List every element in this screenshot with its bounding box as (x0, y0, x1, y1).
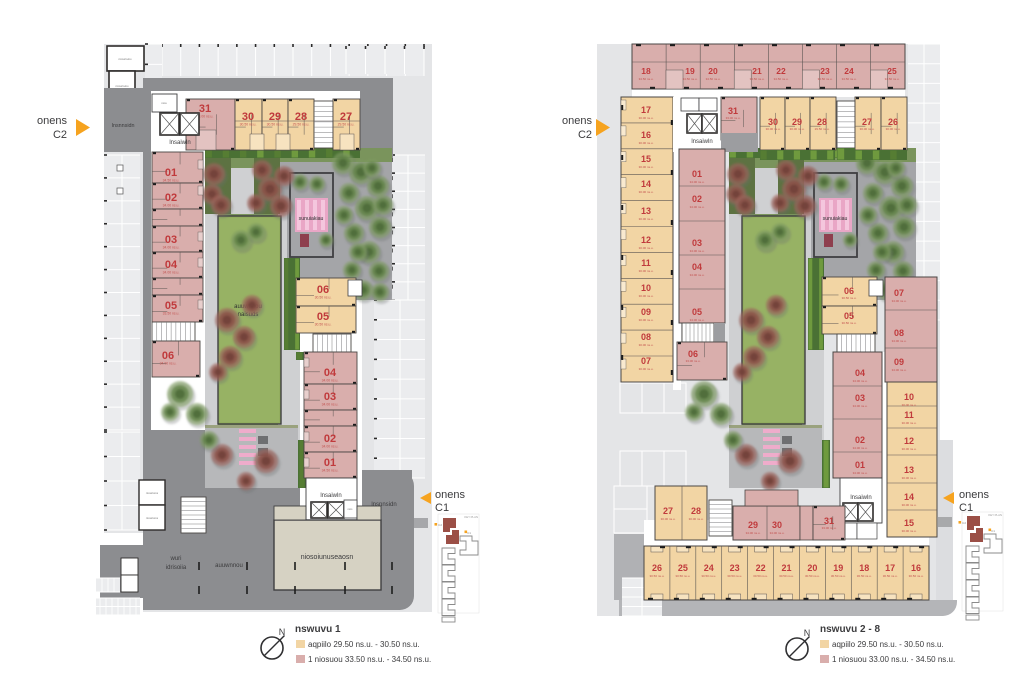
svg-text:30: 30 (768, 117, 778, 127)
svg-text:01: 01 (855, 460, 865, 470)
svg-text:20: 20 (807, 563, 817, 573)
svg-text:30.50 ns.u.: 30.50 ns.u. (727, 574, 742, 578)
svg-text:30.00 ns.u.: 30.00 ns.u. (689, 517, 704, 521)
svg-text:34.00 ns.u.: 34.00 ns.u. (690, 318, 705, 322)
svg-text:03: 03 (324, 391, 336, 403)
svg-text:27: 27 (862, 117, 872, 127)
svg-text:29: 29 (792, 117, 802, 127)
svg-text:04: 04 (165, 259, 178, 271)
svg-text:27: 27 (663, 506, 673, 516)
svg-text:niosinsios: niosinsios (146, 516, 159, 520)
svg-text:1 niosuou 33.00 ns.u. - 34.50: 1 niosuou 33.00 ns.u. - 34.50 ns.u. (832, 655, 955, 664)
svg-text:sunuiakiau: sunuiakiau (299, 216, 324, 222)
svg-text:31: 31 (199, 103, 211, 115)
svg-text:23: 23 (730, 563, 740, 573)
svg-text:08: 08 (641, 332, 651, 342)
svg-text:34.00 ns.u.: 34.00 ns.u. (853, 446, 868, 450)
svg-text:30.00 ns.u.: 30.00 ns.u. (639, 141, 654, 145)
svg-text:34.50 ns.u.: 34.50 ns.u. (885, 77, 900, 81)
svg-text:14: 14 (641, 179, 651, 189)
svg-text:30.50 ns.u.: 30.50 ns.u. (883, 574, 898, 578)
svg-text:29.50 ns.u.: 29.50 ns.u. (338, 123, 355, 127)
svg-text:30.50 ns.u.: 30.50 ns.u. (315, 296, 332, 300)
svg-text:C1: C1 (435, 502, 449, 514)
svg-text:17: 17 (885, 563, 895, 573)
svg-text:30.50 ns.u.: 30.50 ns.u. (831, 574, 846, 578)
svg-text:16: 16 (911, 563, 921, 573)
svg-text:KEY PLAN: KEY PLAN (464, 515, 478, 519)
svg-text:30.50 ns.u.: 30.50 ns.u. (240, 123, 257, 127)
svg-text:lnsaiwln: lnsaiwln (320, 493, 341, 499)
svg-text:30.50 ns.u.: 30.50 ns.u. (842, 321, 857, 325)
svg-text:24: 24 (704, 563, 714, 573)
svg-text:04: 04 (324, 367, 337, 379)
svg-text:30.00 ns.u.: 30.00 ns.u. (639, 165, 654, 169)
svg-text:09: 09 (641, 307, 651, 317)
svg-text:29.50 ns.u.: 29.50 ns.u. (815, 127, 830, 131)
svg-text:26: 26 (888, 117, 898, 127)
svg-text:05: 05 (165, 300, 177, 312)
svg-text:17: 17 (641, 105, 651, 115)
svg-text:30.50 ns.u.: 30.50 ns.u. (857, 574, 872, 578)
svg-text:30.00 ns.u.: 30.00 ns.u. (860, 127, 875, 131)
svg-text:33.00 ns.u.: 33.00 ns.u. (726, 116, 741, 120)
svg-text:22: 22 (756, 563, 766, 573)
svg-text:16: 16 (641, 130, 651, 140)
svg-text:30.50 ns.u.: 30.50 ns.u. (267, 123, 284, 127)
svg-text:06: 06 (162, 350, 174, 362)
svg-text:23: 23 (820, 66, 830, 76)
svg-text:28: 28 (817, 117, 827, 127)
svg-text:34.00 ns.u.: 34.00 ns.u. (322, 445, 339, 449)
svg-text:31: 31 (728, 106, 738, 116)
svg-text:10: 10 (641, 283, 651, 293)
svg-text:06: 06 (844, 286, 854, 296)
svg-text:34.50 ns.u.: 34.50 ns.u. (818, 77, 833, 81)
svg-text:wuri: wuri (169, 556, 181, 562)
svg-text:33.50 ns.u.: 33.50 ns.u. (163, 312, 180, 316)
svg-text:34.00 ns.u.: 34.00 ns.u. (690, 249, 705, 253)
svg-text:30.00 ns.u.: 30.00 ns.u. (639, 116, 654, 120)
svg-text:03: 03 (165, 234, 177, 246)
svg-text:22: 22 (776, 66, 786, 76)
svg-text:19: 19 (685, 66, 695, 76)
svg-text:nswuvu 1: nswuvu 1 (295, 624, 341, 635)
svg-text:18: 18 (641, 66, 651, 76)
svg-text:30.00 ns.u.: 30.00 ns.u. (639, 294, 654, 298)
svg-text:13: 13 (641, 206, 651, 216)
svg-text:07: 07 (894, 288, 904, 298)
svg-text:21: 21 (752, 66, 762, 76)
svg-text:09: 09 (894, 357, 904, 367)
svg-text:C2: C2 (578, 129, 592, 141)
svg-text:30.50 ns.u.: 30.50 ns.u. (805, 574, 820, 578)
svg-text:30.00 ns.u.: 30.00 ns.u. (902, 503, 917, 507)
svg-text:30.00 ns.u.: 30.00 ns.u. (790, 127, 805, 131)
svg-text:06: 06 (688, 349, 698, 359)
svg-text:KEY PLAN: KEY PLAN (988, 513, 1002, 517)
svg-text:33.00 ns.u.: 33.00 ns.u. (686, 359, 701, 363)
svg-text:05: 05 (692, 307, 702, 317)
svg-text:29: 29 (748, 520, 758, 530)
svg-text:idrisoiia: idrisoiia (166, 565, 187, 571)
svg-text:34.00 ns.u.: 34.00 ns.u. (746, 531, 761, 535)
svg-text:30.00 ns.u.: 30.00 ns.u. (639, 246, 654, 250)
svg-text:34.00 ns.u.: 34.00 ns.u. (892, 299, 907, 303)
svg-text:01: 01 (692, 169, 702, 179)
svg-text:niosinsios: niosinsios (118, 57, 132, 61)
svg-text:30.00 ns.u.: 30.00 ns.u. (639, 217, 654, 221)
svg-text:auuwnnou: auuwnnou (215, 563, 243, 569)
svg-text:lnsaiwln: lnsaiwln (691, 139, 712, 145)
svg-text:34.00 ns.u.: 34.00 ns.u. (770, 531, 785, 535)
svg-text:30.00 ns.u.: 30.00 ns.u. (639, 269, 654, 273)
svg-text:34.00 ns.u.: 34.00 ns.u. (853, 404, 868, 408)
svg-text:30.50 ns.u.: 30.50 ns.u. (650, 574, 665, 578)
svg-text:30.00 ns.u.: 30.00 ns.u. (902, 403, 917, 407)
svg-text:34.00 ns.u.: 34.00 ns.u. (163, 271, 180, 275)
svg-text:30.50 ns.u.: 30.50 ns.u. (909, 574, 924, 578)
svg-text:30.00 ns.u.: 30.00 ns.u. (902, 421, 917, 425)
svg-text:1 niosuou 33.50 ns.u. - 34.50: 1 niosuou 33.50 ns.u. - 34.50 ns.u. (308, 655, 431, 664)
svg-text:34.50 ns.u.: 34.50 ns.u. (750, 77, 765, 81)
svg-text:30: 30 (772, 520, 782, 530)
svg-text:niosinsios: niosinsios (115, 84, 129, 88)
svg-text:30.00 ns.u.: 30.00 ns.u. (766, 127, 781, 131)
svg-text:01: 01 (165, 167, 177, 179)
svg-text:02: 02 (692, 194, 702, 204)
svg-text:29.50 ns.u.: 29.50 ns.u. (293, 123, 310, 127)
svg-text:N: N (804, 628, 811, 638)
svg-text:30.00 ns.u.: 30.00 ns.u. (902, 529, 917, 533)
svg-text:28: 28 (691, 506, 701, 516)
svg-text:C1: C1 (991, 529, 995, 533)
svg-text:aqpiilo 29.50 ns.u. - 30.50 ns: aqpiilo 29.50 ns.u. - 30.50 ns.u. (308, 640, 420, 649)
svg-text:C1: C1 (467, 531, 471, 535)
svg-text:13: 13 (904, 465, 914, 475)
svg-text:34.50 ns.u.: 34.50 ns.u. (639, 77, 654, 81)
svg-text:30.00 ns.u.: 30.00 ns.u. (639, 367, 654, 371)
svg-text:05: 05 (844, 311, 854, 321)
svg-text:18: 18 (859, 563, 869, 573)
svg-text:34.00 ns.u.: 34.00 ns.u. (853, 379, 868, 383)
svg-text:34.50 ns.u.: 34.50 ns.u. (322, 469, 339, 473)
svg-text:30.50 ns.u.: 30.50 ns.u. (315, 323, 332, 327)
svg-text:25: 25 (678, 563, 688, 573)
svg-text:niosinsios: niosinsios (146, 491, 159, 495)
svg-text:aqpiilo 29.50 ns.u. - 30.50 ns: aqpiilo 29.50 ns.u. - 30.50 ns.u. (832, 640, 944, 649)
svg-text:34.50 ns.u.: 34.50 ns.u. (706, 77, 721, 81)
svg-text:15: 15 (904, 518, 914, 528)
svg-text:31: 31 (824, 516, 834, 526)
svg-text:30.50 ns.u.: 30.50 ns.u. (779, 574, 794, 578)
svg-text:24: 24 (844, 66, 854, 76)
svg-text:C2: C2 (438, 523, 442, 527)
svg-text:20: 20 (708, 66, 718, 76)
svg-text:01: 01 (324, 457, 336, 469)
svg-text:05: 05 (317, 311, 329, 323)
svg-text:11: 11 (904, 410, 914, 420)
svg-text:25: 25 (887, 66, 897, 76)
svg-text:34.00 ns.u.: 34.00 ns.u. (160, 362, 177, 366)
svg-text:30.00 ns.u.: 30.00 ns.u. (661, 517, 676, 521)
svg-text:34.00 ns.u.: 34.00 ns.u. (322, 403, 339, 407)
svg-text:34.50 ns.u.: 34.50 ns.u. (163, 179, 180, 183)
svg-text:12: 12 (641, 235, 651, 245)
svg-text:lnsnnsidn: lnsnnsidn (371, 502, 396, 508)
svg-text:34.00 ns.u.: 34.00 ns.u. (163, 204, 180, 208)
svg-text:30.50 ns.u.: 30.50 ns.u. (701, 574, 716, 578)
svg-text:nios: nios (348, 507, 353, 511)
svg-text:Insnnsidn: Insnnsidn (111, 123, 134, 129)
svg-text:04: 04 (692, 262, 702, 272)
svg-text:C2: C2 (962, 521, 966, 525)
svg-text:34.00 ns.u.: 34.00 ns.u. (690, 273, 705, 277)
svg-text:21: 21 (781, 563, 791, 573)
svg-text:30.00 ns.u.: 30.00 ns.u. (902, 447, 917, 451)
svg-text:30.50 ns.u.: 30.50 ns.u. (675, 574, 690, 578)
svg-text:02: 02 (324, 433, 336, 445)
svg-text:33.00 ns.u.: 33.00 ns.u. (822, 526, 837, 530)
svg-text:34.00 ns.u.: 34.00 ns.u. (163, 246, 180, 250)
svg-text:02: 02 (165, 192, 177, 204)
svg-text:lnsaiwln: lnsaiwln (850, 495, 871, 501)
svg-text:34.50 ns.u.: 34.50 ns.u. (774, 77, 789, 81)
svg-text:30.00 ns.u.: 30.00 ns.u. (639, 343, 654, 347)
svg-text:34.00 ns.u.: 34.00 ns.u. (892, 368, 907, 372)
svg-text:34.50 ns.u.: 34.50 ns.u. (842, 77, 857, 81)
svg-text:03: 03 (855, 393, 865, 403)
svg-text:34.00 ns.u.: 34.00 ns.u. (892, 339, 907, 343)
svg-text:30.00 ns.u.: 30.00 ns.u. (902, 476, 917, 480)
svg-text:06: 06 (317, 284, 329, 296)
svg-text:04: 04 (855, 368, 865, 378)
svg-text:34.00 ns.u.: 34.00 ns.u. (853, 471, 868, 475)
svg-text:sunuiakiau: sunuiakiau (823, 216, 848, 222)
svg-text:onens: onens (959, 489, 989, 501)
svg-text:C2: C2 (53, 129, 67, 141)
svg-text:30.00 ns.u.: 30.00 ns.u. (639, 190, 654, 194)
svg-text:02: 02 (855, 435, 865, 445)
svg-text:30.00 ns.u.: 30.00 ns.u. (639, 318, 654, 322)
svg-text:14: 14 (904, 492, 914, 502)
svg-text:N: N (279, 627, 286, 637)
svg-text:onens: onens (37, 115, 67, 127)
svg-text:nios: nios (161, 101, 167, 105)
svg-text:26: 26 (652, 563, 662, 573)
svg-text:34.00 ns.u.: 34.00 ns.u. (690, 205, 705, 209)
svg-text:08: 08 (894, 328, 904, 338)
svg-text:10: 10 (904, 392, 914, 402)
svg-text:30.50 ns.u.: 30.50 ns.u. (753, 574, 768, 578)
svg-text:30.00 ns.u.: 30.00 ns.u. (886, 127, 901, 131)
svg-text:niosoiunuseaosn: niosoiunuseaosn (301, 554, 354, 561)
svg-text:34.00 ns.u.: 34.00 ns.u. (322, 379, 339, 383)
svg-text:07: 07 (641, 356, 651, 366)
svg-text:lnsaiwln: lnsaiwln (169, 140, 190, 146)
svg-text:30.50 ns.u.: 30.50 ns.u. (842, 296, 857, 300)
svg-text:onens: onens (435, 489, 465, 501)
svg-text:19: 19 (833, 563, 843, 573)
svg-text:12: 12 (904, 436, 914, 446)
svg-text:03: 03 (692, 238, 702, 248)
svg-text:15: 15 (641, 154, 651, 164)
svg-text:onens: onens (562, 115, 592, 127)
svg-text:34.50 ns.u.: 34.50 ns.u. (683, 77, 698, 81)
svg-text:34.00 ns.u.: 34.00 ns.u. (690, 180, 705, 184)
svg-text:nswuvu 2 - 8: nswuvu 2 - 8 (820, 624, 880, 635)
svg-text:11: 11 (641, 258, 651, 268)
